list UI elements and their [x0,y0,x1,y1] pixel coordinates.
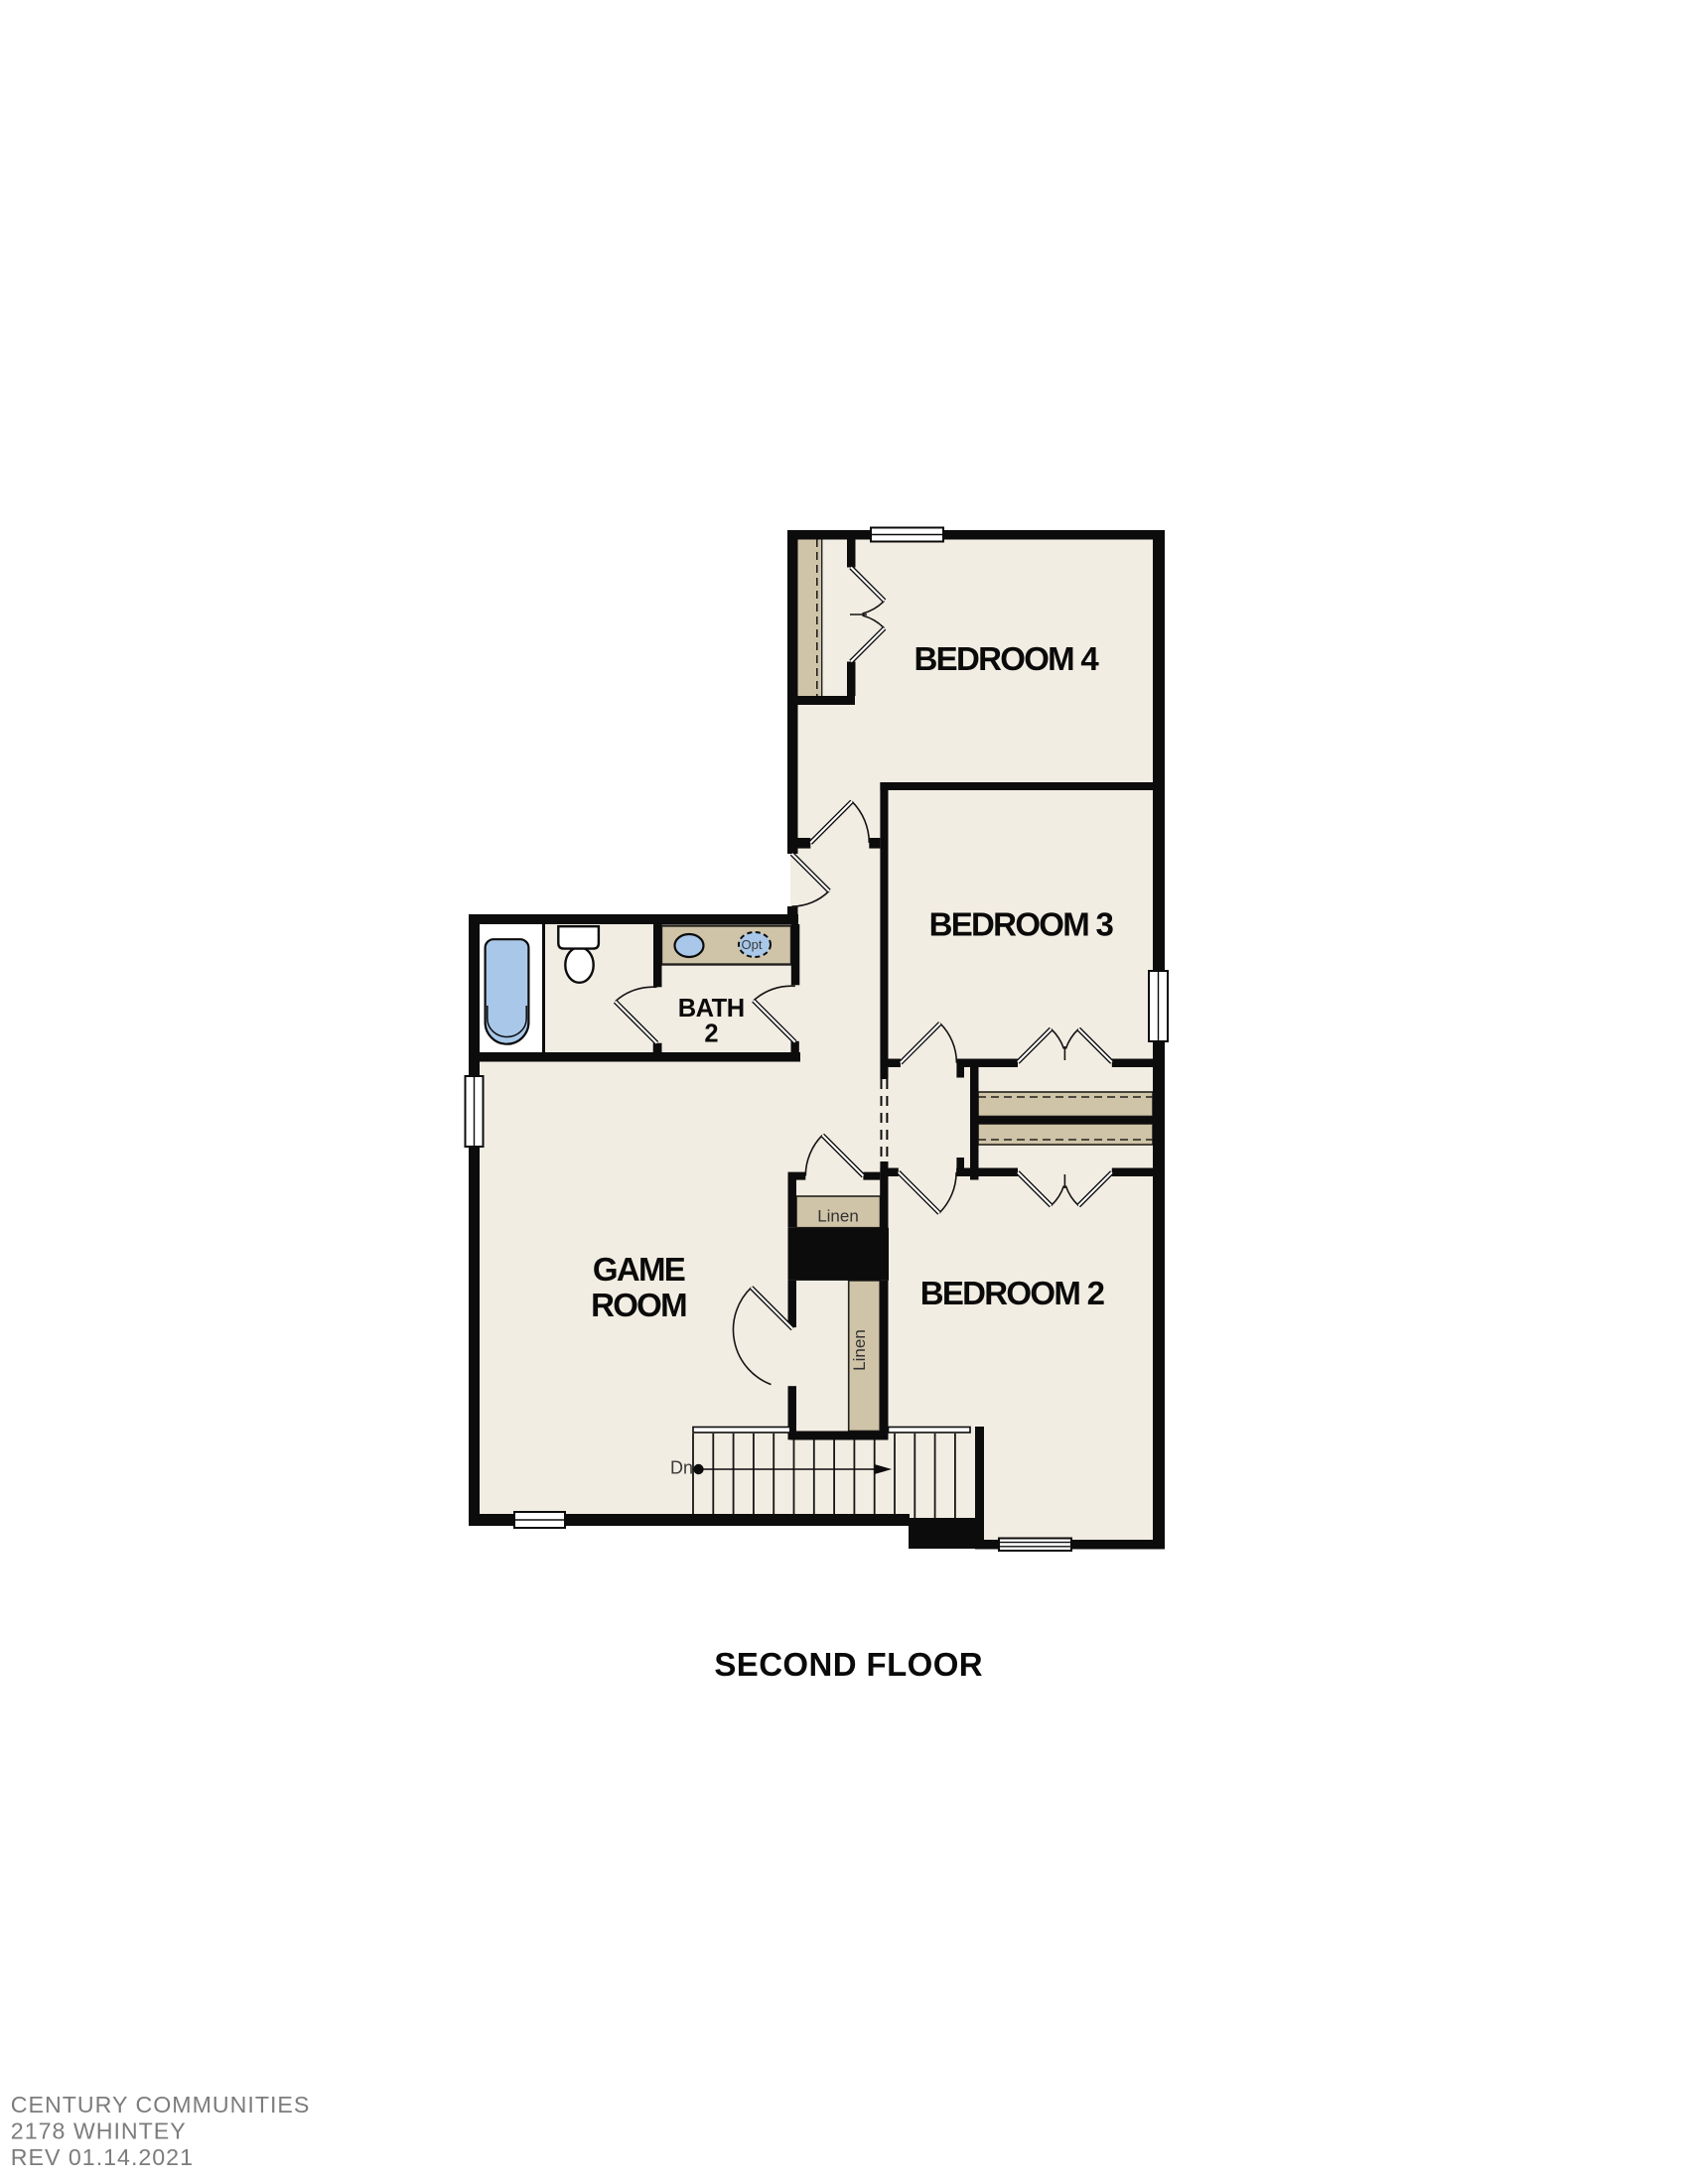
svg-text:SECOND FLOOR: SECOND FLOOR [714,1646,983,1683]
svg-text:BEDROOM 2: BEDROOM 2 [920,1275,1105,1311]
svg-text:2: 2 [704,1021,718,1048]
svg-text:BEDROOM 3: BEDROOM 3 [929,906,1114,943]
svg-text:CENTURY COMMUNITIES: CENTURY COMMUNITIES [11,2092,311,2117]
svg-text:Linen: Linen [817,1207,859,1226]
svg-text:Dn: Dn [670,1458,693,1478]
svg-text:BATH: BATH [678,995,745,1023]
svg-text:Opt: Opt [742,937,763,952]
svg-text:BEDROOM 4: BEDROOM 4 [914,640,1100,677]
svg-text:GAME: GAME [593,1251,685,1288]
svg-text:REV 01.14.2021: REV 01.14.2021 [11,2144,194,2170]
svg-text:2178 WHINTEY: 2178 WHINTEY [11,2117,187,2143]
svg-text:ROOM: ROOM [591,1287,686,1323]
svg-text:Linen: Linen [850,1329,869,1371]
